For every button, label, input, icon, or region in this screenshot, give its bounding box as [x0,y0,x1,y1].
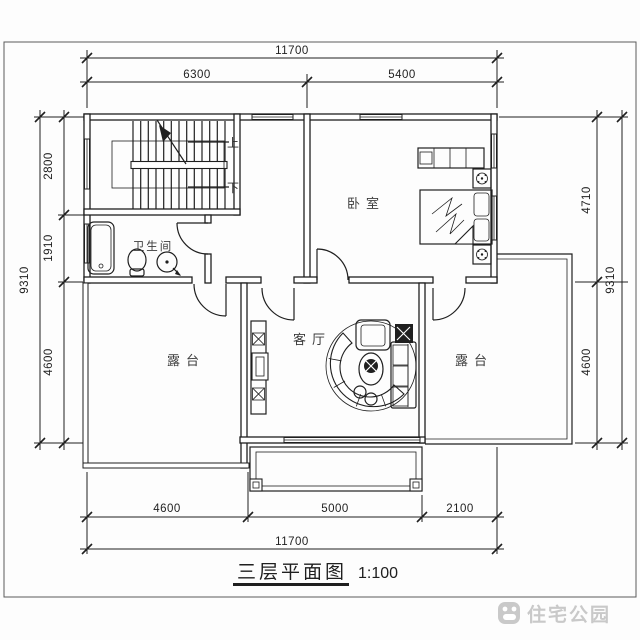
title-text: 三层平面图 [237,562,347,583]
sheet-frame [4,42,636,597]
bed [420,190,492,244]
window-bathroom-left [85,224,90,263]
window-hall-top [252,115,293,120]
window-stairs-left [85,139,90,189]
terrace-right-label: 露台 [455,353,493,368]
wardrobe [418,148,484,168]
window-bedroom-top [360,115,402,120]
dim-top-total: 11700 [275,45,309,57]
stair-up-label: 上 [227,136,239,150]
dim-bottom-segment-1: 4600 [153,503,181,515]
nightstand-lamp-bottom [473,245,491,264]
bedroom-label: 卧室 [347,196,385,211]
dim-left-segment-2: 1910 [43,234,55,262]
dim-left-total: 9310 [19,266,31,294]
dimension-right: 4710 4600 9310 [499,110,628,450]
watermark-logo [498,602,520,624]
terrace-right-outline [425,254,572,444]
title-underline [233,583,349,586]
staircase: 上 下 [112,120,239,209]
terrace-left-label: 露台 [167,353,205,368]
scale-label: 1:100 [358,565,398,582]
dim-bottom-segment-3: 2100 [446,503,474,515]
toilet [128,249,146,276]
stair-down-label: 下 [227,181,239,195]
bathroom-label: 卫生间 [133,239,174,253]
dim-bottom-segment-2: 5000 [321,503,349,515]
dim-left-segment-3: 4600 [43,348,55,376]
dimension-left: 2800 1910 4600 9310 [19,110,84,450]
tv-cabinet [251,321,268,414]
wash-basin [157,252,181,276]
dim-top-segment-1: 6300 [183,69,211,81]
window-living-south [284,438,420,443]
door-bathroom [177,223,208,254]
dim-right-segment-2: 4600 [581,348,593,376]
living-room-label: 客厅 [293,332,331,347]
nightstand-lamp-top [473,169,491,188]
drawing-sheet: 11700 6300 5400 4600 5000 2100 11700 280… [0,0,640,640]
watermark: 住宅公园 [498,602,611,626]
dimension-top: 11700 6300 5400 [80,45,504,108]
balcony [250,447,422,491]
floor-plan-svg: 11700 6300 5400 4600 5000 2100 11700 280… [0,0,640,640]
drawing-title: 三层平面图 1:100 [233,562,398,586]
window-bedroom-right-1 [492,134,497,168]
door-terrace-right [433,288,465,320]
door-living-room [262,288,294,320]
door-terrace-left [194,284,226,316]
stair-treads-lower [133,169,225,209]
door-bedroom [317,249,348,280]
watermark-text: 住宅公园 [527,603,611,626]
corner-plant-table [395,324,413,343]
dim-top-segment-2: 5400 [388,69,416,81]
dim-bottom-total: 11700 [275,536,309,548]
armchair [356,320,390,350]
bathtub [88,222,114,274]
stair-railing [131,162,227,169]
dim-right-segment-1: 4710 [581,186,593,214]
living-room-furniture [251,320,416,414]
dim-right-total: 9310 [605,266,617,294]
bedroom-furniture [418,148,492,264]
dim-left-segment-1: 2800 [43,152,55,180]
